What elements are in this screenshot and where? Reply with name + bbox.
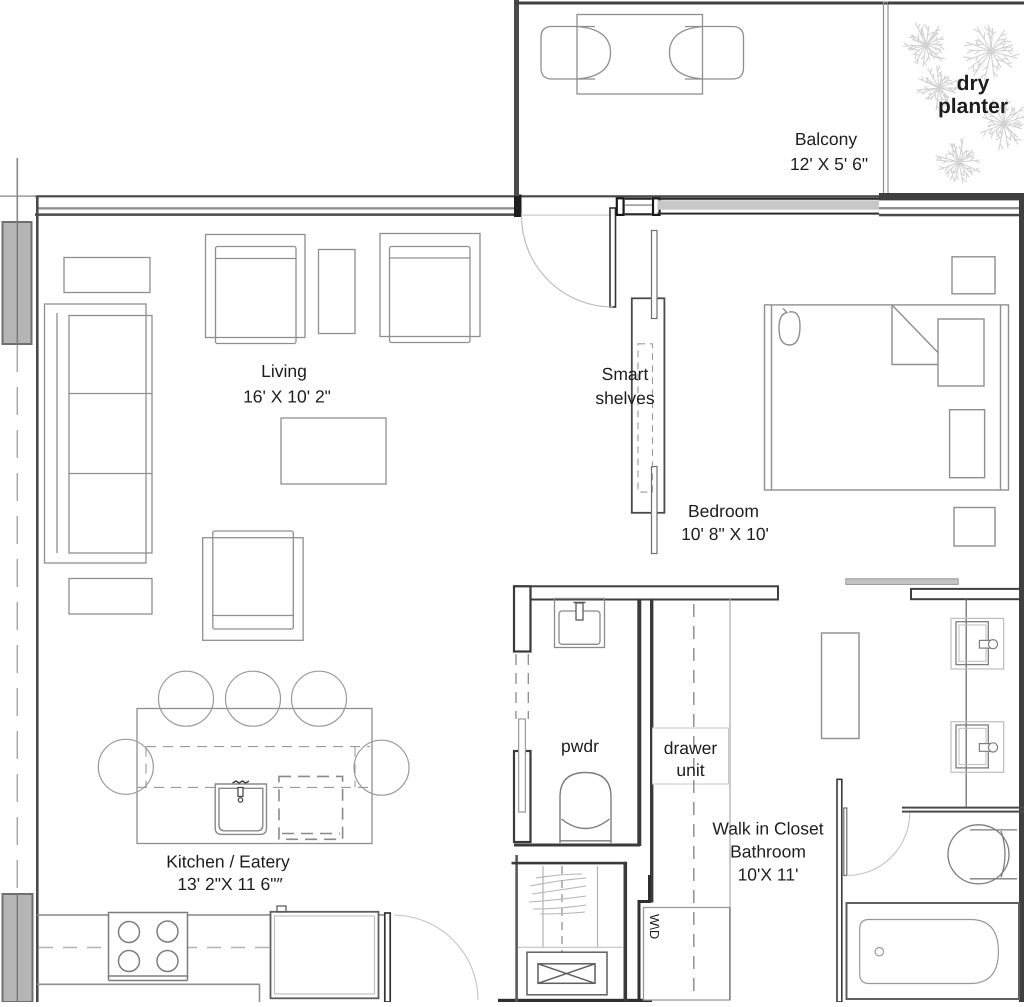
svg-text:16' X 10' 2": 16' X 10' 2" bbox=[243, 387, 331, 407]
svg-text:Bedroom: Bedroom bbox=[688, 501, 759, 521]
svg-text:dry: dry bbox=[957, 72, 990, 95]
svg-text:Living: Living bbox=[261, 361, 307, 381]
svg-text:12' X 5' 6": 12' X 5' 6" bbox=[790, 154, 868, 174]
svg-text:drawer: drawer bbox=[664, 738, 718, 758]
svg-text:W\D: W\D bbox=[647, 914, 662, 939]
svg-text:pwdr: pwdr bbox=[561, 736, 599, 756]
svg-text:planter: planter bbox=[938, 95, 1008, 118]
svg-text:Bathroom: Bathroom bbox=[730, 842, 806, 862]
svg-text:10' 8" X 10': 10' 8" X 10' bbox=[681, 524, 769, 544]
svg-text:10'X 11': 10'X 11' bbox=[738, 865, 799, 885]
svg-text:shelves: shelves bbox=[595, 388, 655, 408]
svg-text:Balcony: Balcony bbox=[795, 129, 858, 149]
svg-text:13' 2"X 11 6"″: 13' 2"X 11 6"″ bbox=[177, 874, 282, 894]
svg-text:Walk in Closet: Walk in Closet bbox=[712, 819, 823, 839]
svg-text:Kitchen / Eatery: Kitchen / Eatery bbox=[166, 852, 290, 872]
svg-text:unit: unit bbox=[676, 760, 704, 780]
svg-text:Smart: Smart bbox=[602, 364, 649, 384]
